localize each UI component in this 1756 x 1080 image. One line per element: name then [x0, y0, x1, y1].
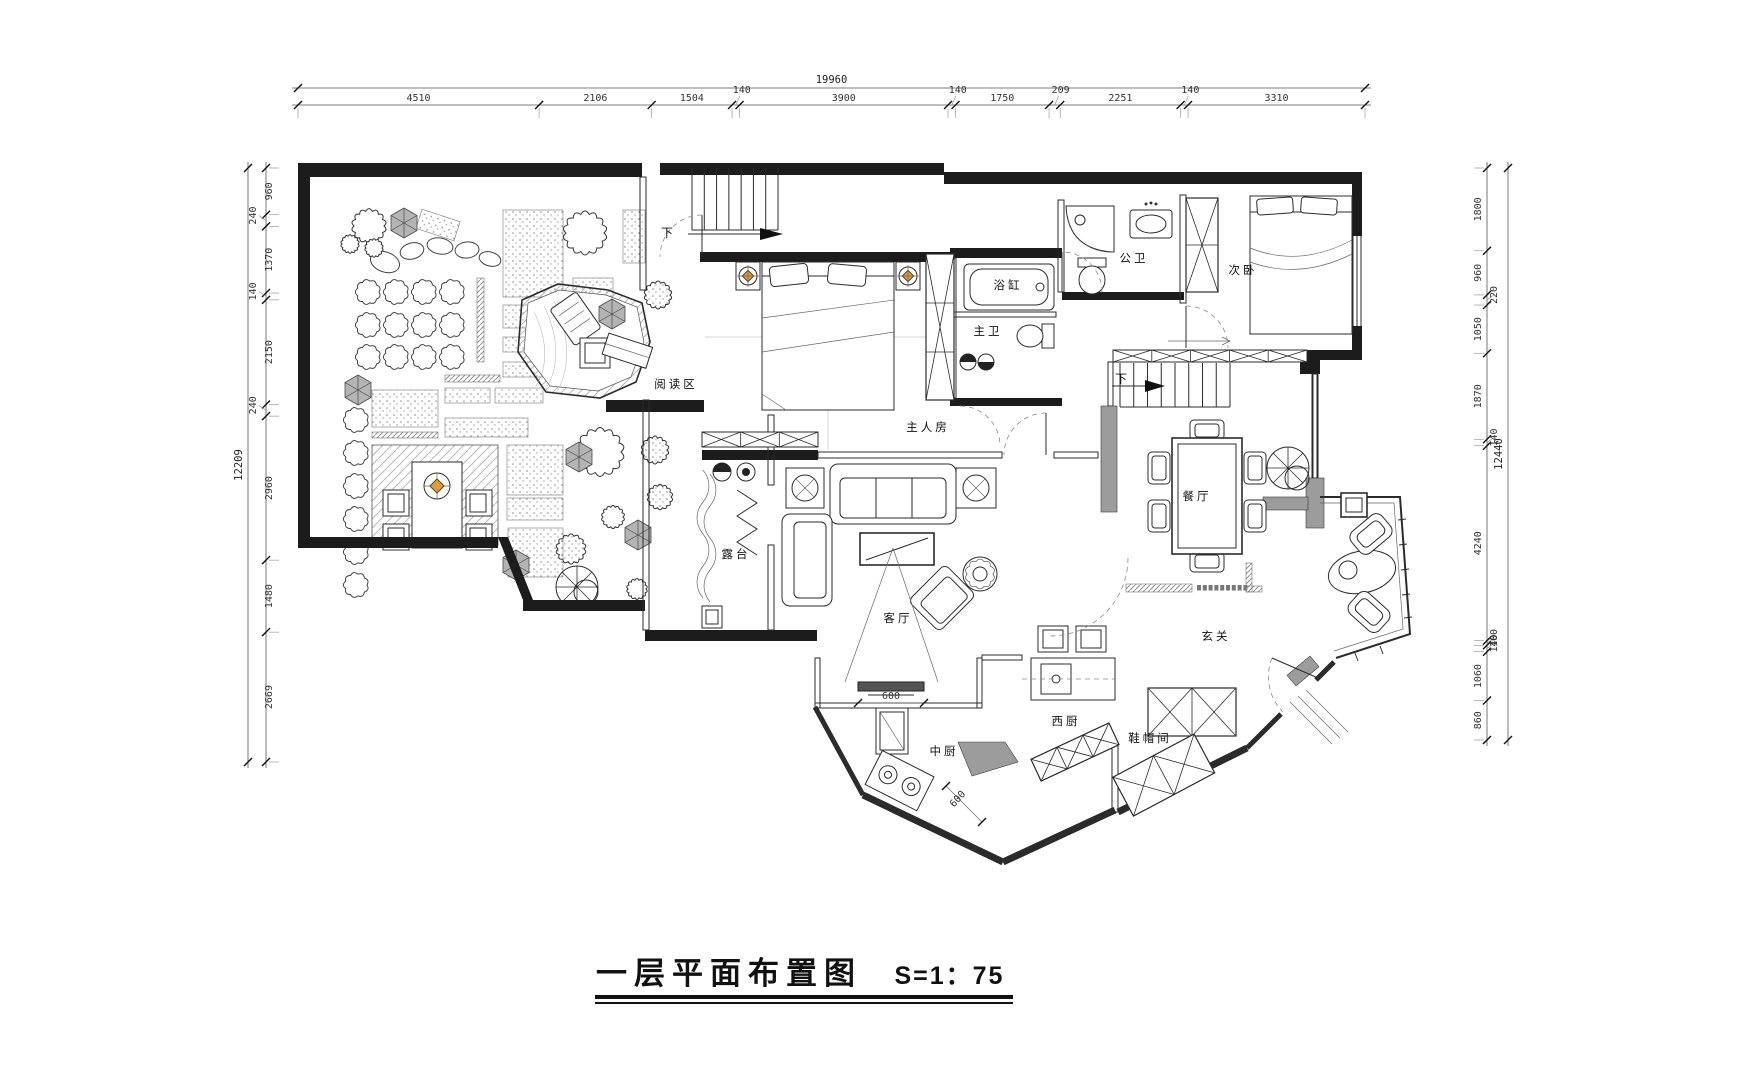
shrub	[439, 313, 464, 338]
shrub	[439, 345, 464, 370]
room-label-bathtub-room: 浴缸	[994, 278, 1023, 292]
garden-terrace	[341, 208, 757, 628]
room-label-cloakroom: 鞋帽间	[1128, 731, 1172, 745]
dim-label: 2669	[264, 685, 275, 709]
master-toilet	[1017, 324, 1054, 348]
shrub	[355, 313, 380, 338]
tree	[556, 534, 586, 564]
dim-label: 1370	[264, 248, 275, 272]
tree	[602, 505, 625, 528]
washer	[960, 354, 994, 370]
stepping-stones	[367, 236, 502, 277]
room-label-master-bath: 主卫	[974, 325, 1003, 338]
dim-label: 2150	[264, 340, 275, 364]
hex-parasol	[345, 375, 371, 405]
dim-label: 140	[248, 282, 259, 300]
floor-plan-page: 4510210615041403900140175020922511403310…	[0, 0, 1756, 1080]
reading-deck	[518, 284, 653, 398]
dining-spiral-stair	[1267, 447, 1309, 490]
room-label-foyer: 玄关	[1202, 629, 1231, 643]
dim-label: 1870	[1473, 384, 1484, 408]
hedge	[343, 573, 368, 598]
inline-dim-tv-width: 600	[882, 691, 900, 702]
drawing-scale: S=1：75	[894, 962, 1004, 990]
dim-label: 240	[248, 207, 259, 225]
dim-label: 140	[949, 85, 967, 96]
hex-parasol	[391, 208, 417, 238]
terrace-decor	[697, 463, 757, 628]
tree	[563, 211, 606, 255]
drawing-title: 一层平面布置图	[596, 956, 862, 991]
tree	[365, 239, 383, 258]
dim-label: 1480	[264, 584, 275, 608]
shower	[1066, 206, 1114, 252]
dim-label: 860	[1473, 711, 1484, 729]
deck-dining-set	[372, 445, 498, 550]
hex-parasol	[625, 520, 651, 550]
room-label-public-bath: 公卫	[1120, 252, 1149, 265]
kitchen-island	[1022, 626, 1115, 700]
shrub	[411, 313, 436, 338]
dim-label: 140	[733, 85, 751, 96]
room-label-dining-room: 餐厅	[1183, 489, 1212, 503]
dim-total-label: 12209	[233, 449, 245, 481]
dim-label: 4510	[406, 93, 430, 104]
dim-label: 1050	[1473, 317, 1484, 341]
dim-label: 240	[248, 396, 259, 414]
master-wardrobe	[926, 254, 954, 400]
shrub	[355, 280, 380, 305]
title-block: 一层平面布置图 S=1：75	[596, 948, 1026, 993]
tree	[647, 484, 672, 510]
shrub	[383, 345, 408, 370]
dim-label: 209	[1052, 85, 1070, 96]
dim-total-label: 12440	[1493, 438, 1505, 470]
tree	[644, 281, 671, 309]
dim-label: 2106	[583, 93, 607, 104]
shrub	[411, 345, 436, 370]
shrub	[383, 280, 408, 305]
room-label-living-room: 客厅	[884, 611, 913, 625]
dim-label: 4240	[1473, 531, 1484, 555]
room-label-terrace: 露台	[722, 547, 751, 561]
dim-label: 960	[264, 182, 275, 200]
shrub	[439, 280, 464, 305]
floor-plan: 4510210615041403900140175020922511403310…	[0, 0, 1756, 1080]
note-stair-down-top: 下	[661, 226, 673, 240]
room-label-second-bedroom: 次卧	[1229, 263, 1258, 277]
tree	[627, 579, 647, 600]
dim-label: 960	[1473, 264, 1484, 282]
shoe-cabinet	[1148, 688, 1236, 736]
hedge	[343, 441, 368, 466]
shrub	[383, 313, 408, 338]
title-underline-thin	[595, 1002, 1013, 1004]
room-label-reading-area: 阅读区	[654, 377, 698, 391]
hedge	[343, 408, 368, 433]
shoe-cabinet	[1113, 734, 1215, 816]
dim-label: 1504	[680, 93, 704, 104]
dim-label: 140	[1181, 85, 1199, 96]
shrub	[411, 280, 436, 305]
room-label-chinese-kitchen: 中厨	[930, 745, 959, 758]
dim-total-label: 19960	[816, 74, 848, 86]
tree	[641, 436, 668, 464]
title-underline-thick	[595, 995, 1013, 999]
note-stair-down-dining: 下	[1115, 372, 1127, 386]
room-label-western-kitchen: 西厨	[1052, 715, 1081, 728]
public-sink	[1130, 202, 1172, 239]
stairs-dining	[1112, 337, 1230, 407]
dim-label: 3900	[832, 93, 856, 104]
dim-label: 220	[1489, 286, 1500, 304]
dim-label: 1800	[1473, 197, 1484, 221]
rattan-chair	[963, 557, 997, 591]
hedge	[343, 474, 368, 499]
fixtures	[660, 196, 1400, 826]
second-bed	[1250, 196, 1352, 334]
dim-label: 2251	[1108, 93, 1132, 104]
inline-dim-counter-width: 600	[948, 789, 968, 810]
dim-label: 2960	[264, 476, 275, 500]
balcony-set	[1324, 510, 1399, 635]
dim-label: 1060	[1473, 664, 1484, 688]
west-kitchen-counter	[1031, 723, 1119, 781]
dim-label: 3310	[1264, 93, 1288, 104]
parasol	[424, 473, 450, 499]
tree	[341, 235, 359, 254]
sofa-set	[782, 464, 997, 682]
hedge	[343, 507, 368, 532]
second-wardrobe	[1186, 198, 1218, 292]
fridge	[876, 708, 908, 754]
dim-label: 1750	[990, 93, 1014, 104]
room-label-master-bedroom: 主人房	[906, 421, 950, 434]
dim-label: 140	[1489, 634, 1500, 652]
shrub	[355, 345, 380, 370]
